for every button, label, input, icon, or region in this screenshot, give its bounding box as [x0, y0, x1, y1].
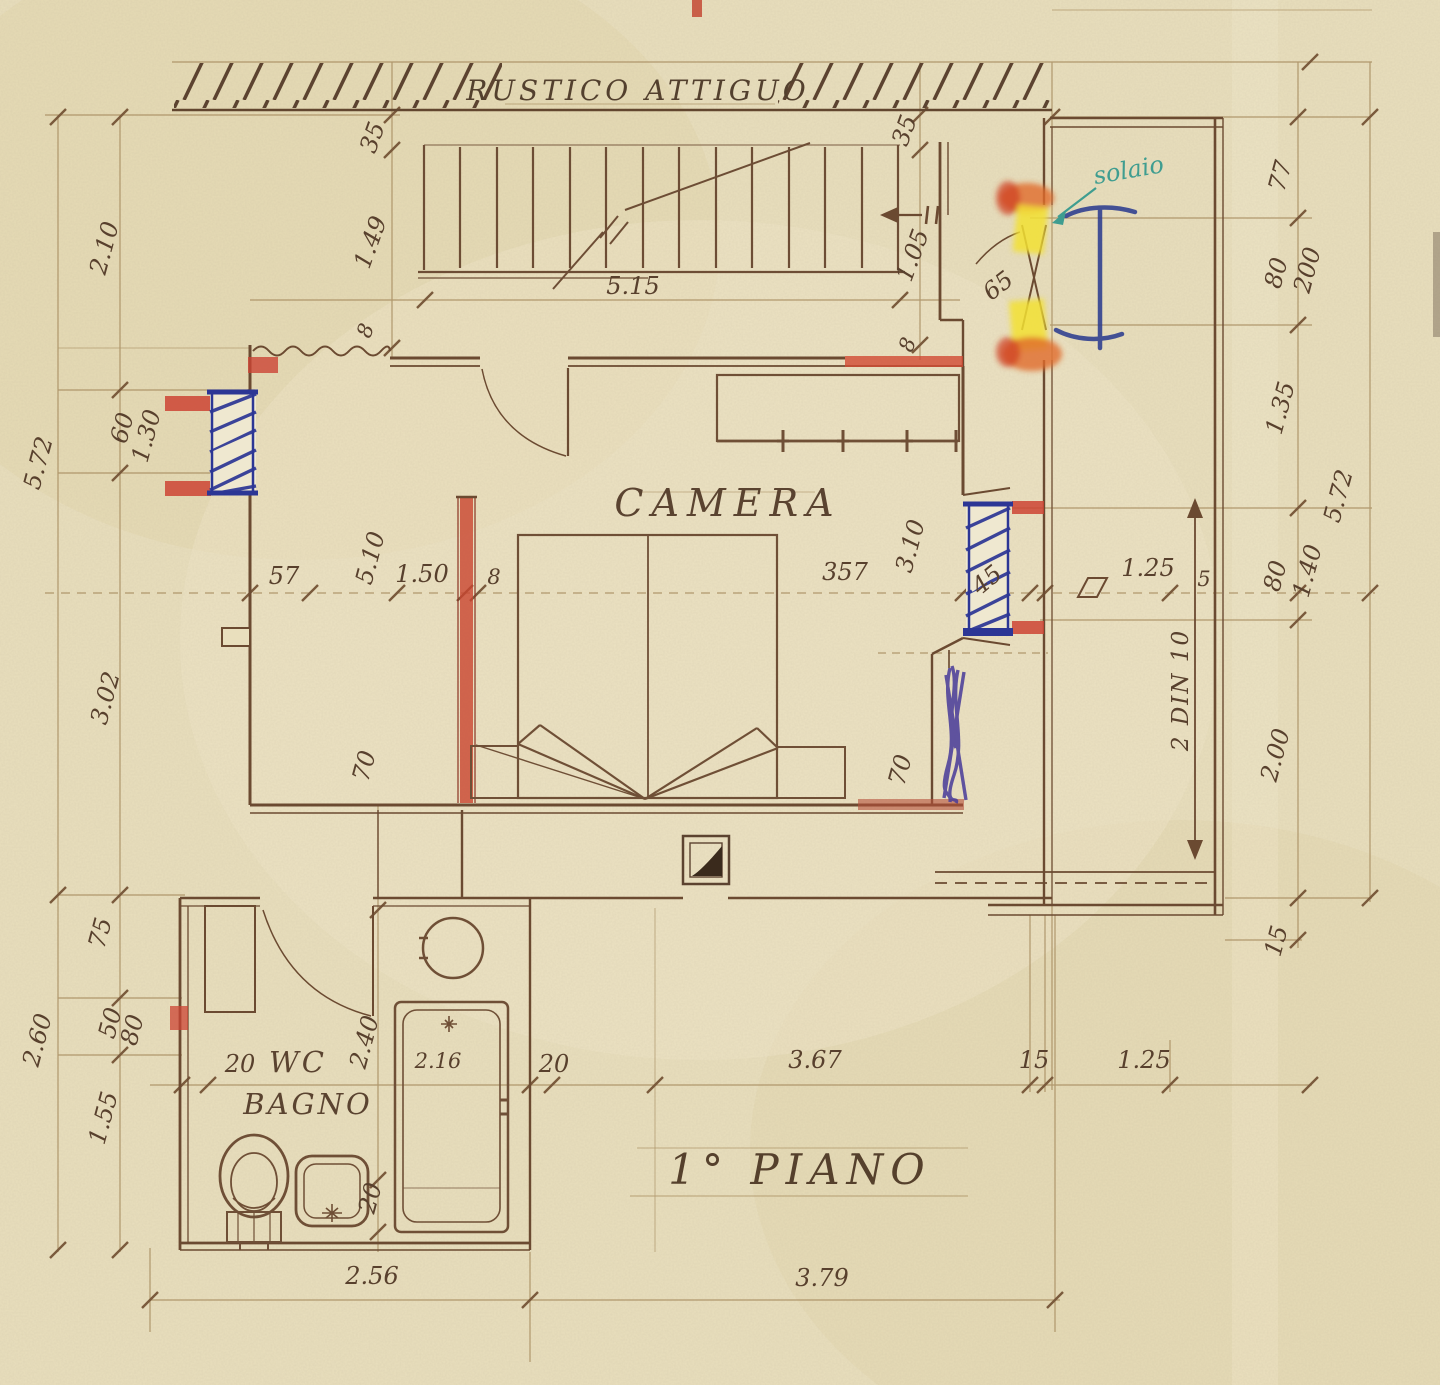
dim-bath-2: 2.16 [414, 1049, 462, 1073]
dim-mid-8: 5 [1197, 567, 1210, 591]
dim-lower-1: 3.67 [788, 1046, 842, 1074]
din-note: 2 DIN 10 [1168, 629, 1194, 752]
adjacent-building-label: RUSTICO ATTIGUO [465, 74, 809, 107]
dim-lower-2: 15 [1019, 1046, 1050, 1074]
floor-title: 1° PIANO [668, 1145, 931, 1194]
dim-stairs: 5.15 [606, 272, 659, 300]
window-left [207, 392, 258, 494]
dim-mid-2: 1.50 [395, 560, 448, 588]
dim-mid-0: 57 [269, 562, 300, 590]
dim-bottom-0: 2.56 [344, 1262, 398, 1290]
floor-plan-drawing: RUSTICO ATTIGUO CAMERA WC BAGNO 1° PIANO… [0, 0, 1440, 1385]
bagno-label: BAGNO [242, 1087, 373, 1121]
dim-bath-0: 20 [224, 1050, 256, 1078]
dim-mid-3: 8 [487, 565, 500, 589]
dim-bottom-1: 3.79 [795, 1264, 848, 1292]
dim-mid-7: 1.25 [1121, 554, 1174, 582]
floor-plan-svg: RUSTICO ATTIGUO CAMERA WC BAGNO 1° PIANO… [0, 0, 1440, 1385]
dim-lower-0: 20 [538, 1050, 570, 1078]
dim-mid-4: 357 [822, 558, 869, 586]
wc-label: WC [269, 1045, 327, 1079]
camera-label: CAMERA [614, 481, 841, 525]
dim-lower-3: 1.25 [1117, 1046, 1170, 1074]
